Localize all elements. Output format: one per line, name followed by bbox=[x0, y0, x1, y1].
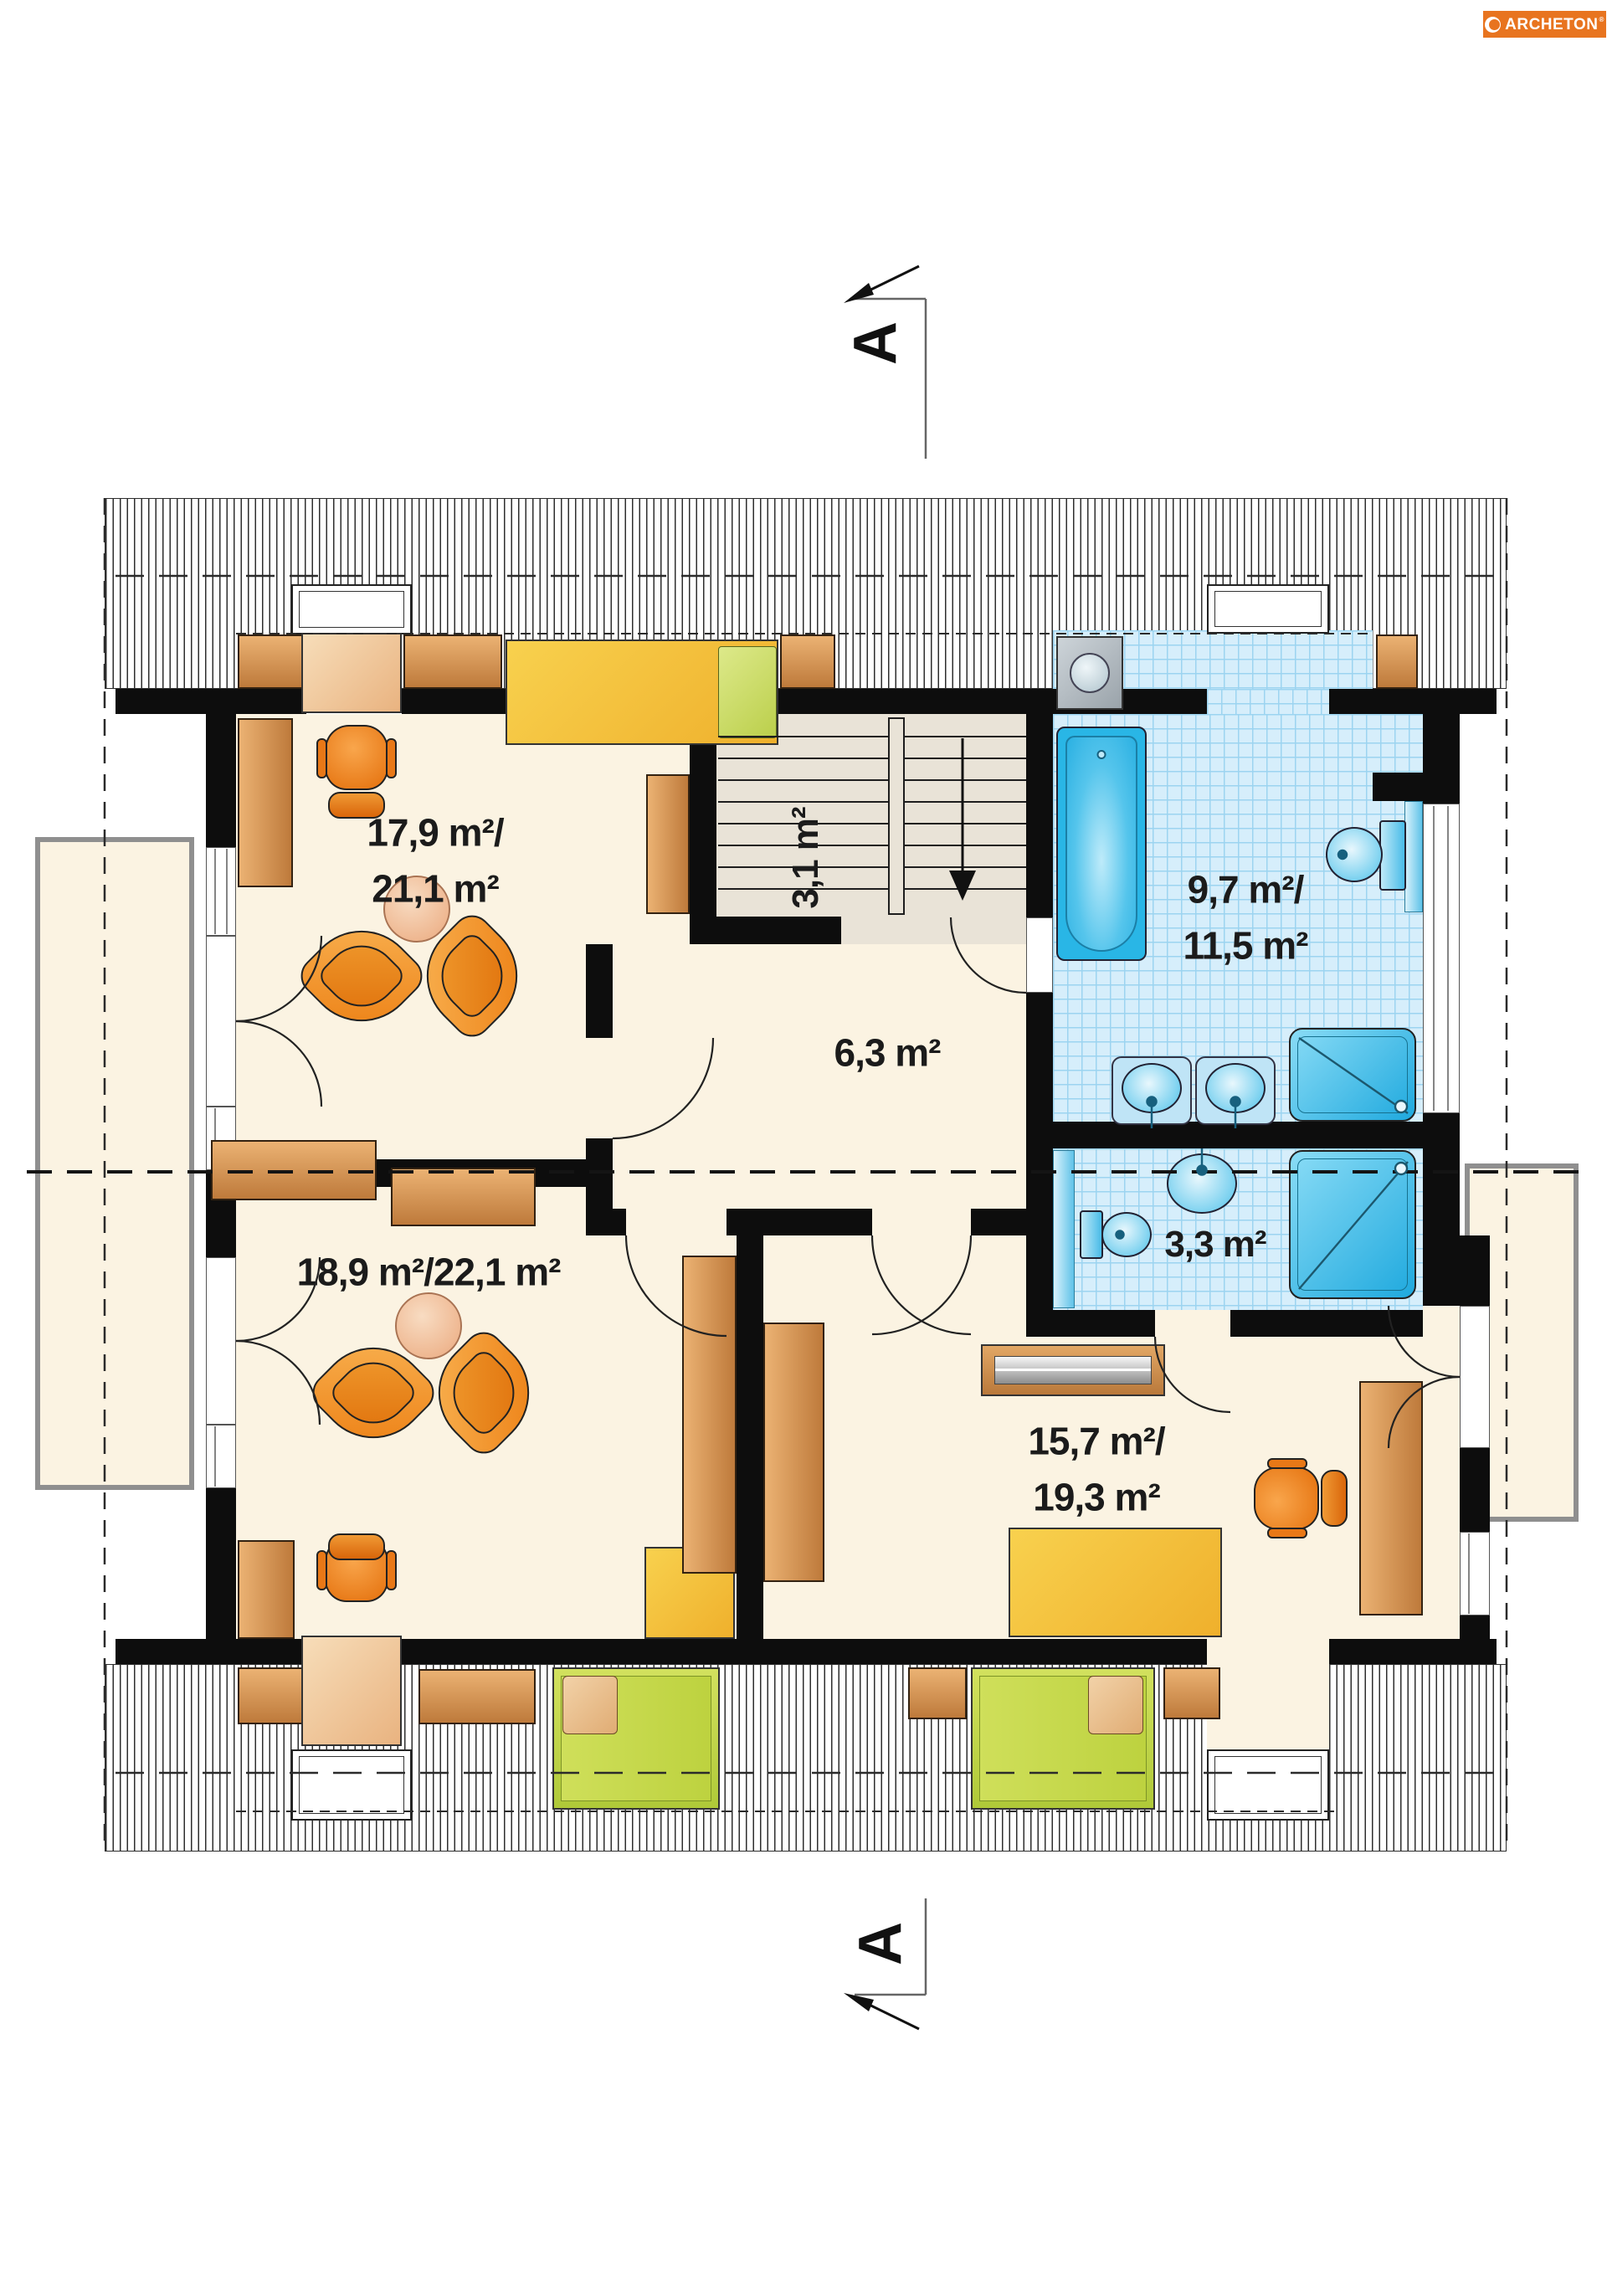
door-arc-bedroom-tl bbox=[613, 1038, 713, 1138]
door-arc-bedroom-br-2 bbox=[872, 1235, 971, 1334]
section-arrow-icon bbox=[844, 283, 874, 303]
section-letter-top: A bbox=[842, 321, 909, 365]
registered-mark: ® bbox=[1599, 16, 1604, 23]
stair-down-arrow-icon bbox=[949, 871, 976, 901]
stair-handrail bbox=[889, 718, 904, 914]
door-arc-balcony-br-leaf2 bbox=[1389, 1377, 1460, 1448]
fixture-taps bbox=[1117, 850, 1348, 1239]
plan-linework: A A bbox=[0, 0, 1607, 2296]
archeton-logo-text: ARCHETON® bbox=[1505, 17, 1604, 33]
archeton-logo-icon bbox=[1485, 17, 1501, 33]
brand-name: ARCHETON bbox=[1505, 16, 1598, 33]
archeton-logo: ARCHETON® bbox=[1483, 11, 1606, 38]
stair-treads bbox=[718, 737, 1026, 889]
roof-reference-dashed-lines bbox=[105, 498, 1507, 1852]
section-letter-bottom: A bbox=[847, 1922, 914, 1965]
section-arrow-icon bbox=[844, 1993, 874, 2011]
door-arc-wc bbox=[1155, 1337, 1230, 1412]
door-arc-bedroom-br-1 bbox=[872, 1235, 971, 1334]
door-arc-balcony-tl-leaf1 bbox=[236, 936, 321, 1021]
door-arc-balcony-tl-leaf2 bbox=[236, 1021, 321, 1107]
door-arc-balcony-br-leaf1 bbox=[1389, 1306, 1460, 1377]
door-arc-bedroom-bl bbox=[626, 1235, 726, 1336]
section-marker-bottom: A bbox=[844, 1898, 926, 2029]
shower-details bbox=[1299, 1038, 1408, 1289]
door-arc-balcony-bl-leaf2 bbox=[236, 1341, 320, 1425]
section-marker-top: A bbox=[842, 266, 926, 459]
floor-plan-canvas: 17,9 m²/ 21,1 m² 3,1 m² 6,3 m² 9,7 m²/ 1… bbox=[0, 0, 1607, 2296]
door-arc-balcony-bl-leaf1 bbox=[236, 1257, 320, 1341]
door-arc-bathroom bbox=[951, 917, 1026, 993]
door-swing-arcs bbox=[236, 917, 1460, 1448]
